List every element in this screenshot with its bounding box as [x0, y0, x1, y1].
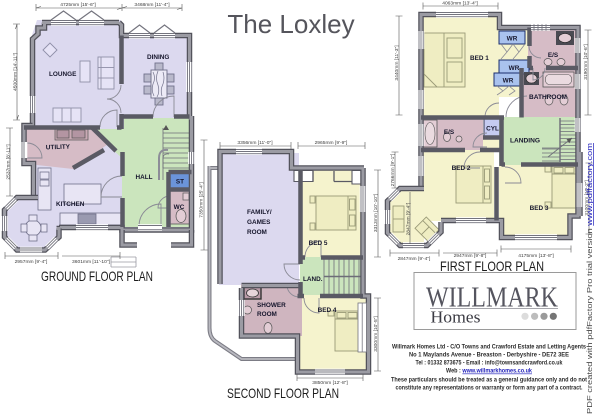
svg-text:SECOND FLOOR PLAN: SECOND FLOOR PLAN	[227, 386, 339, 401]
svg-text:FAMILY/: FAMILY/	[247, 209, 272, 216]
svg-text:ROOM: ROOM	[257, 311, 277, 318]
svg-text:BED 1: BED 1	[470, 55, 489, 62]
svg-text:E/S: E/S	[548, 52, 559, 59]
svg-text:2537mm [8'-11"]: 2537mm [8'-11"]	[6, 144, 12, 180]
svg-text:Web : www.willmarkhomes.co.uk: Web : www.willmarkhomes.co.uk	[446, 368, 532, 375]
svg-text:SHOWER: SHOWER	[257, 302, 286, 309]
svg-text:ROOM: ROOM	[247, 229, 267, 236]
svg-text:No 1 Maylands Avenue - Breasto: No 1 Maylands Avenue - Breaston - Derbys…	[409, 352, 570, 359]
svg-text:Homes: Homes	[431, 308, 481, 327]
svg-text:LAND.: LAND.	[303, 276, 323, 283]
svg-text:FIRST FLOOR PLAN: FIRST FLOOR PLAN	[440, 259, 544, 274]
svg-text:LANDING: LANDING	[510, 138, 540, 145]
svg-text:2957mm [9'-4"]: 2957mm [9'-4"]	[15, 259, 48, 265]
svg-text:4063mm [13'-4"]: 4063mm [13'-4"]	[442, 1, 478, 7]
svg-text:BATHROOM: BATHROOM	[529, 94, 567, 101]
svg-text:WR: WR	[503, 78, 514, 85]
svg-text:BED 5: BED 5	[309, 240, 328, 247]
svg-text:3468mm [11'-4"]: 3468mm [11'-4"]	[134, 2, 170, 8]
svg-text:4725mm [15'-6"]: 4725mm [15'-6"]	[60, 2, 96, 8]
svg-text:4500mm [14'-11"]: 4500mm [14'-11"]	[13, 52, 19, 91]
svg-text:2766mm [9'-1"]: 2766mm [9'-1"]	[390, 153, 396, 186]
svg-text:Willmark Homes Ltd - C/O Towns: Willmark Homes Ltd - C/O Towns and Crawf…	[392, 344, 586, 351]
svg-text:These particulars should be tr: These particulars should be treated as a…	[391, 377, 588, 384]
svg-text:GROUND FLOOR PLAN: GROUND FLOOR PLAN	[41, 269, 153, 284]
svg-text:ST: ST	[176, 179, 184, 186]
svg-text:DINING: DINING	[147, 54, 169, 61]
svg-text:LOUNGE: LOUNGE	[49, 71, 77, 78]
svg-text:3356mm [11'-0"]: 3356mm [11'-0"]	[237, 140, 273, 146]
svg-text:BED 2: BED 2	[452, 165, 471, 172]
svg-text:UTILITY: UTILITY	[46, 144, 71, 152]
svg-text:WR: WR	[509, 65, 520, 72]
svg-text:BED 3: BED 3	[530, 205, 549, 212]
svg-text:KITCHEN: KITCHEN	[56, 201, 85, 208]
svg-text:Tel : 01332 873675 - Email : i: Tel : 01332 873675 - Email : info@townsa…	[416, 360, 563, 367]
svg-text:3313mm [10'-10"]: 3313mm [10'-10"]	[373, 193, 379, 232]
svg-text:2847mm [9'-4"]: 2847mm [9'-4"]	[398, 256, 431, 262]
svg-text:E/S: E/S	[444, 129, 455, 136]
svg-text:The Loxley: The Loxley	[227, 9, 354, 39]
svg-text:constitute any representations: constitute any representations or warran…	[396, 385, 583, 392]
svg-text:2965mm [9'-9"]: 2965mm [9'-9"]	[315, 140, 348, 146]
svg-text:GAMES: GAMES	[247, 219, 271, 226]
svg-text:WR: WR	[507, 36, 518, 43]
svg-text:7350mm [25'-4"]: 7350mm [25'-4"]	[199, 182, 205, 218]
svg-text:3300mm [10'-5"]: 3300mm [10'-5"]	[373, 316, 379, 352]
svg-text:2847mm [9'-4"]: 2847mm [9'-4"]	[406, 202, 412, 235]
svg-text:3601mm [11'-10"]: 3601mm [11'-10"]	[72, 259, 111, 265]
svg-text:BED 4: BED 4	[318, 307, 337, 314]
svg-text:3190mm [10'-6"]: 3190mm [10'-6"]	[583, 44, 589, 80]
svg-text:HALL: HALL	[135, 174, 152, 181]
svg-text:PDF created with pdfFactory Pr: PDF created with pdfFactory Pro trial ve…	[585, 143, 594, 414]
svg-text:CYL: CYL	[486, 126, 499, 133]
svg-text:3440mm [11'-3"]: 3440mm [11'-3"]	[394, 45, 400, 81]
